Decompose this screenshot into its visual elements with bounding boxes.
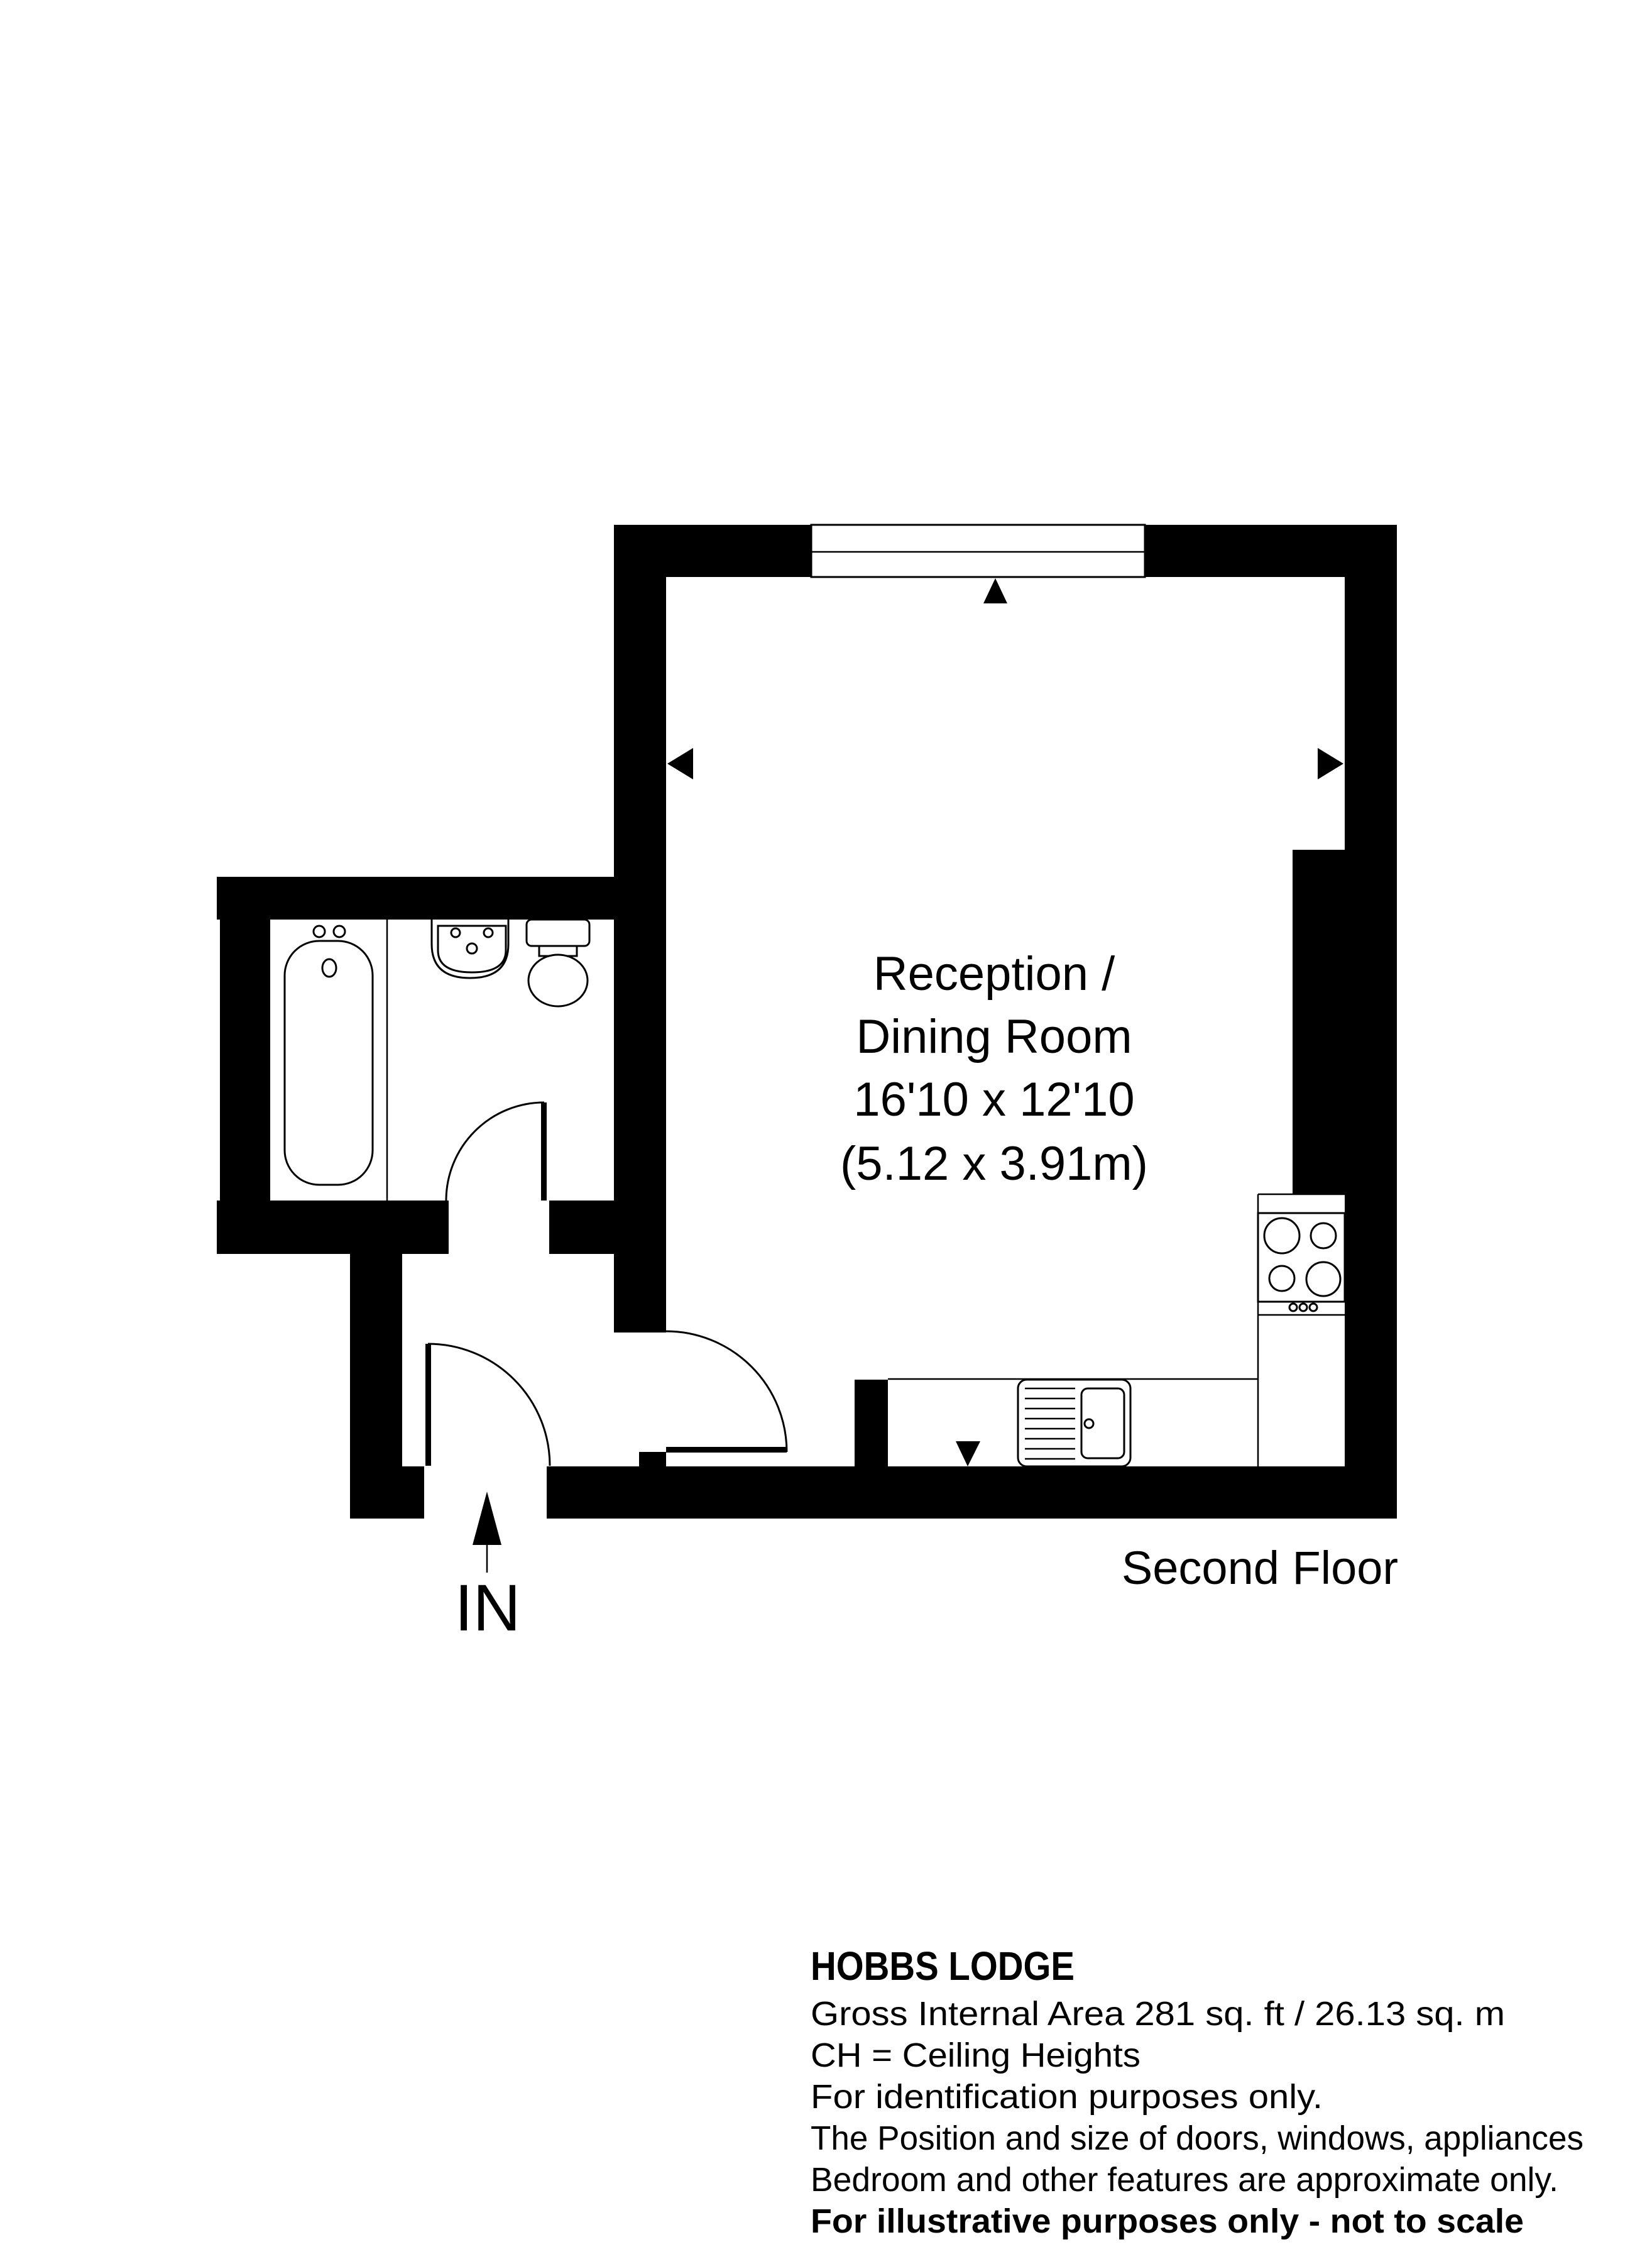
- footer-identification: For identification purposes only.: [811, 2078, 1323, 2116]
- floor-label: Second Floor: [1122, 1542, 1398, 1594]
- toilet-icon: [527, 920, 589, 1006]
- floorplan-drawing: Reception / Dining Room 16'10 x 12'10 (5…: [0, 0, 1652, 2264]
- kitchen-sink-icon: [1018, 1380, 1130, 1466]
- footer-ceiling-heights: CH = Ceiling Heights: [811, 2036, 1141, 2074]
- room-label-dimensions-ft: 16'10 x 12'10: [853, 1073, 1134, 1126]
- room-label-dimensions-m: (5.12 x 3.91m): [840, 1137, 1148, 1190]
- footer-title: HOBBS LODGE: [811, 1943, 1075, 1989]
- window-icon: [811, 525, 1145, 577]
- room-label-line2: Dining Room: [856, 1010, 1132, 1063]
- footer-approximate: Bedroom and other features are approxima…: [811, 2161, 1558, 2199]
- footer-not-to-scale: For illustrative purposes only - not to …: [811, 2202, 1524, 2240]
- bathtub-icon: [285, 926, 373, 1185]
- floorplan-page: Reception / Dining Room 16'10 x 12'10 (5…: [0, 0, 1652, 2264]
- room-label-line1: Reception /: [873, 947, 1115, 1001]
- entrance-label: IN: [455, 1571, 521, 1645]
- footer-gross-area: Gross Internal Area 281 sq. ft / 26.13 s…: [811, 1995, 1505, 2033]
- footer-position-size: The Position and size of doors, windows,…: [811, 2119, 1584, 2157]
